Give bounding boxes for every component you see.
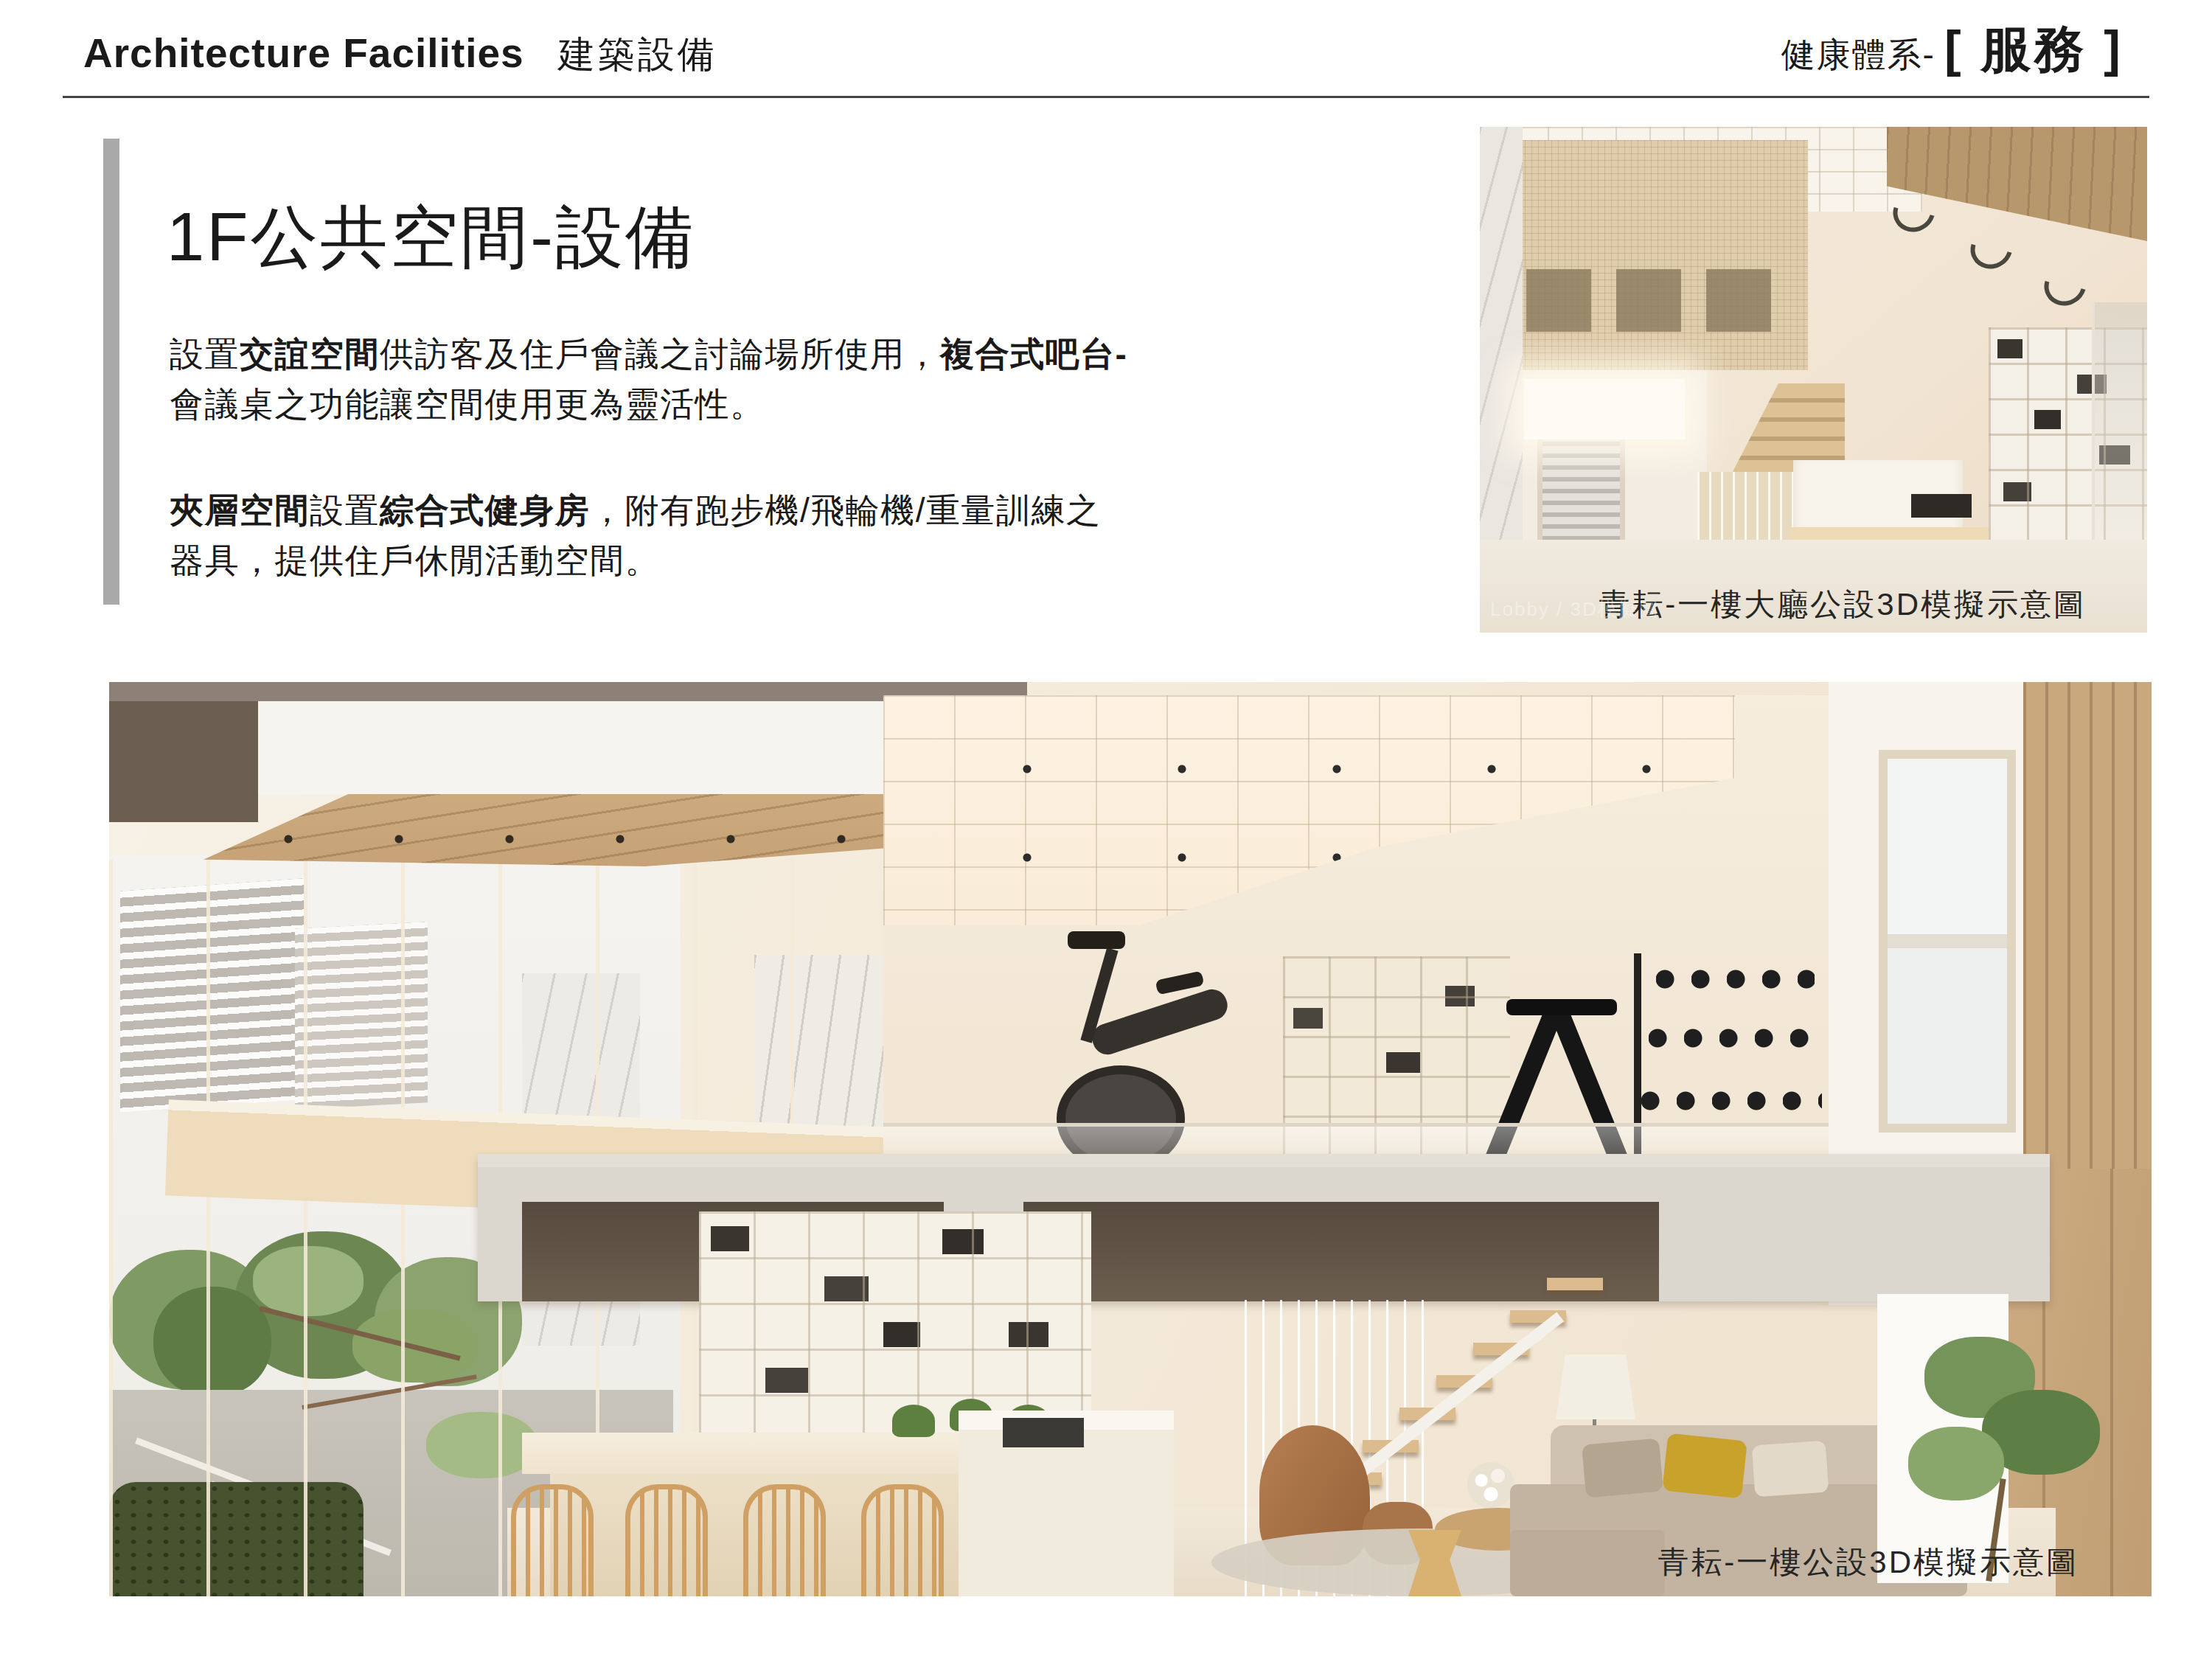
header-divider [63,96,2149,98]
mezzanine-mesh-screen [1498,140,1808,370]
paragraph-gym-space: 夾層空間設置綜合式健身房，附有跑步機/飛輪機/重量訓練之 器具，提供住戶休閒活動… [170,485,1102,585]
yellow-pillow [1662,1433,1747,1499]
text-run: 供訪客及住戶會議之討論場所使用， [380,335,940,373]
text-run: ，附有跑步機/飛輪機/重量訓練之 [590,491,1102,529]
floor-lamp [1556,1354,1635,1419]
mesh-opening [1526,269,1591,332]
dining-chair [861,1484,944,1596]
wood-slat-wall [2023,682,2152,1185]
lobby-watermark: Lobby / 3D模擬圖 [1490,597,1660,622]
dining-chair [625,1484,708,1596]
header-category: 健康體系- [ 服務 ] [1781,16,2124,83]
main-caption: 青耘-一樓公設3D模擬示意圖 [1658,1542,2079,1583]
text-run-bold: 綜合式健身房 [380,491,590,529]
header-category-tag: [ 服務 ] [1944,16,2124,83]
dumbbell-row [1641,1090,1822,1112]
paragraph-line: 夾層空間設置綜合式健身房，附有跑步機/飛輪機/重量訓練之 [170,485,1102,535]
exercise-bike-seat [1068,931,1125,949]
text-run-bold: 交誼空間 [240,335,380,373]
header-title-en: Architecture Facilities [83,29,524,77]
lobby-render-image: 青耘-一樓大廳公設3D模擬示意圖 Lobby / 3D模擬圖 [1480,127,2147,633]
mesh-opening [1616,269,1681,332]
text-run: 設置 [170,335,240,373]
potted-plant [892,1405,935,1437]
leaf-cluster [1908,1427,2004,1500]
light-panel [1524,379,1685,439]
paragraph-line: 器具，提供住戶休閒活動空間。 [170,535,1102,585]
text-run: 設置 [310,491,380,529]
tall-window [1879,750,2016,1133]
text-run-bold: 夾層空間 [170,491,310,529]
page-title: 1F公共空間-設備 [167,192,695,283]
text-run-bold: 複合式吧台- [940,335,1127,373]
paragraph-line: 設置交誼空間供訪客及住戶會議之討論場所使用，複合式吧台- [170,329,1127,379]
header-title-zh: 建築設備 [558,30,717,80]
dining-chair [743,1484,826,1596]
glass-partition [2092,302,2147,547]
paragraph-line: 會議桌之功能讓空間使用更為靈活性。 [170,379,1127,429]
structural-beam [109,682,258,822]
paragraph-social-space: 設置交誼空間供訪客及住戶會議之討論場所使用，複合式吧台- 會議桌之功能讓空間使用… [170,329,1127,429]
main-render-image: 青耘-一樓公設3D模擬示意圖 [109,682,2152,1596]
header-title: Architecture Facilities 建築設備 [83,29,717,80]
pendant-light [2037,257,2093,313]
sink [1003,1418,1084,1447]
text-run: 會議桌之功能讓空間使用更為靈活性。 [170,385,765,423]
lobby-caption: 青耘-一樓大廳公設3D模擬示意圖 [1599,584,2087,625]
bookshelf [699,1211,1091,1436]
pendant-light [1963,220,2020,276]
text-run: 器具，提供住戶休閒活動空間。 [170,541,660,580]
dumbbell-row [1656,968,1815,990]
accent-bar [103,139,119,605]
stair-step [1547,1278,1603,1290]
flower-vase [1467,1462,1514,1508]
pillow [1582,1439,1663,1498]
dining-chair [511,1484,594,1596]
pillow [1752,1441,1829,1498]
mesh-opening [1706,269,1771,332]
book-stack [1911,494,1972,518]
dumbbell-row [1649,1027,1818,1049]
header-category-label: 健康體系- [1781,32,1935,78]
slide: Architecture Facilities 建築設備 健康體系- [ 服務 … [0,0,2212,1659]
sofa-chaise [1510,1530,1665,1596]
bench-press-bar [1506,999,1617,1015]
